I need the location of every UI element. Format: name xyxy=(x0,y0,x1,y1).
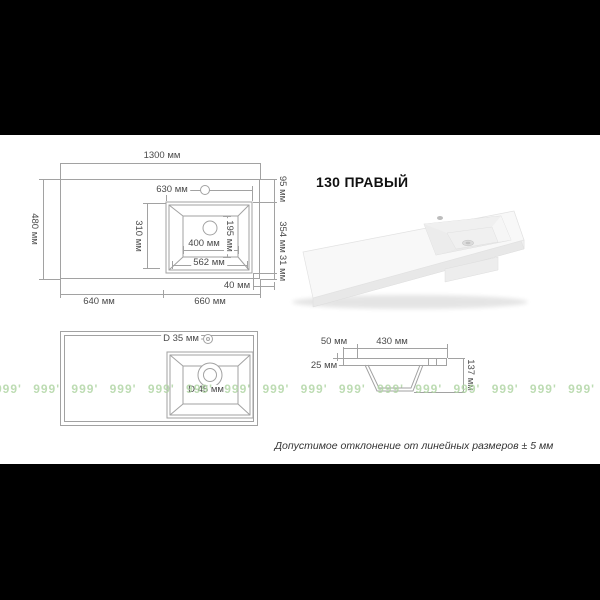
corner-slope xyxy=(170,355,183,366)
faucet-hole xyxy=(201,186,210,195)
ext-line xyxy=(260,279,278,280)
ext-line xyxy=(260,279,261,290)
dim-right-top: 95 мм xyxy=(277,174,287,204)
ext-line xyxy=(43,179,60,180)
tick xyxy=(274,282,275,290)
dim-right-middle: 354 мм xyxy=(277,219,287,255)
dim-basin-inner-depth: 195 мм xyxy=(224,218,234,254)
corner-slope xyxy=(238,404,250,415)
corner-slope xyxy=(238,257,249,270)
ext-line xyxy=(43,279,60,280)
dim-right-bottom: 31 мм xyxy=(277,253,287,283)
slab-detail-line xyxy=(428,358,429,366)
ext-line xyxy=(60,163,61,179)
drawing-sheet: 1300 мм 480 мм 630 мм 310 мм 195 мм 400 … xyxy=(0,0,600,600)
dim-sink-top-width: 630 мм xyxy=(154,185,190,195)
bottom-black-bar xyxy=(0,464,600,600)
dim-total-width: 1300 мм xyxy=(142,151,183,161)
slab-detail-line xyxy=(436,358,437,366)
dim-left-offset: 50 мм xyxy=(319,337,349,347)
ext-line xyxy=(260,179,278,180)
sink-3d-render xyxy=(296,196,596,320)
ext-line xyxy=(343,348,344,358)
dim-line xyxy=(60,163,260,164)
dim-slab-thickness: 25 мм xyxy=(309,361,339,371)
dim-line xyxy=(60,294,260,295)
ext-line xyxy=(60,279,61,290)
dim-right-gap: 40 мм xyxy=(222,281,252,291)
label-faucet-hole: D 35 мм xyxy=(161,334,201,344)
watermark-row: 999' 999' 999' 999' 999' 999' 999' 999' … xyxy=(0,381,600,397)
dim-bottom-right: 660 мм xyxy=(192,297,228,307)
tick xyxy=(163,290,164,298)
corner-slope xyxy=(169,257,183,270)
drain-hole xyxy=(203,221,217,235)
tolerance-note: Допустимое отклонение от линейных размер… xyxy=(275,440,554,452)
dim-line xyxy=(147,203,148,268)
ext-line xyxy=(260,163,261,179)
corner-slope xyxy=(238,205,249,216)
dim-basin-inner-width: 400 мм xyxy=(186,239,222,249)
faucet-hole-3d xyxy=(437,216,443,220)
dim-sink-left-depth: 310 мм xyxy=(133,218,143,254)
dim-bottom-left: 640 мм xyxy=(81,297,117,307)
tick xyxy=(333,358,343,359)
corner-slope xyxy=(170,404,183,415)
faucet-hole-d35 xyxy=(204,335,213,344)
ext-line xyxy=(357,348,358,358)
ext-line xyxy=(447,348,448,358)
tick xyxy=(253,282,254,290)
tick xyxy=(260,290,261,298)
model-title: 130 ПРАВЫЙ xyxy=(316,174,408,190)
drain-3d-center xyxy=(466,242,471,244)
dim-line xyxy=(343,348,447,349)
dim-line xyxy=(43,179,44,279)
dim-total-depth: 480 мм xyxy=(29,211,39,247)
dim-line xyxy=(253,286,274,287)
top-black-bar xyxy=(0,0,600,135)
dim-section-basin-width: 430 мм xyxy=(374,337,410,347)
ext-line xyxy=(147,268,160,269)
corner-slope xyxy=(238,355,250,366)
tick xyxy=(60,290,61,298)
dim-sink-bottom-width: 562 мм xyxy=(191,258,227,268)
corner-slope xyxy=(169,205,183,216)
dim-line xyxy=(274,179,275,279)
